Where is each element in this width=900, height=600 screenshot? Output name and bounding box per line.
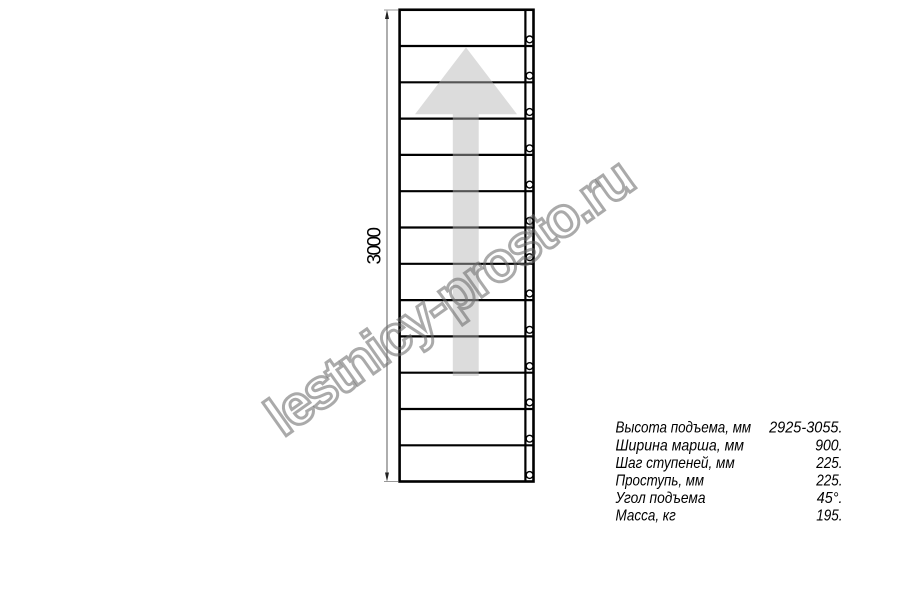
svg-text:195.: 195.: [816, 508, 842, 525]
svg-text:Проступь, мм: Проступь, мм: [616, 473, 705, 490]
svg-text:Угол подъема: Угол подъема: [615, 490, 706, 507]
svg-text:Ширина марша, мм: Ширина марша, мм: [616, 437, 745, 454]
svg-text:225.: 225.: [815, 455, 842, 472]
svg-text:2925-3055.: 2925-3055.: [768, 420, 842, 437]
svg-text:Шаг ступеней, мм: Шаг ступеней, мм: [616, 455, 735, 472]
svg-text:3000: 3000: [365, 227, 386, 265]
svg-text:Высота подъема, мм: Высота подъема, мм: [616, 420, 752, 437]
svg-text:Масса, кг: Масса, кг: [616, 508, 676, 525]
svg-text:45°.: 45°.: [817, 490, 843, 507]
svg-text:900.: 900.: [815, 437, 842, 454]
svg-text:225.: 225.: [815, 473, 842, 490]
